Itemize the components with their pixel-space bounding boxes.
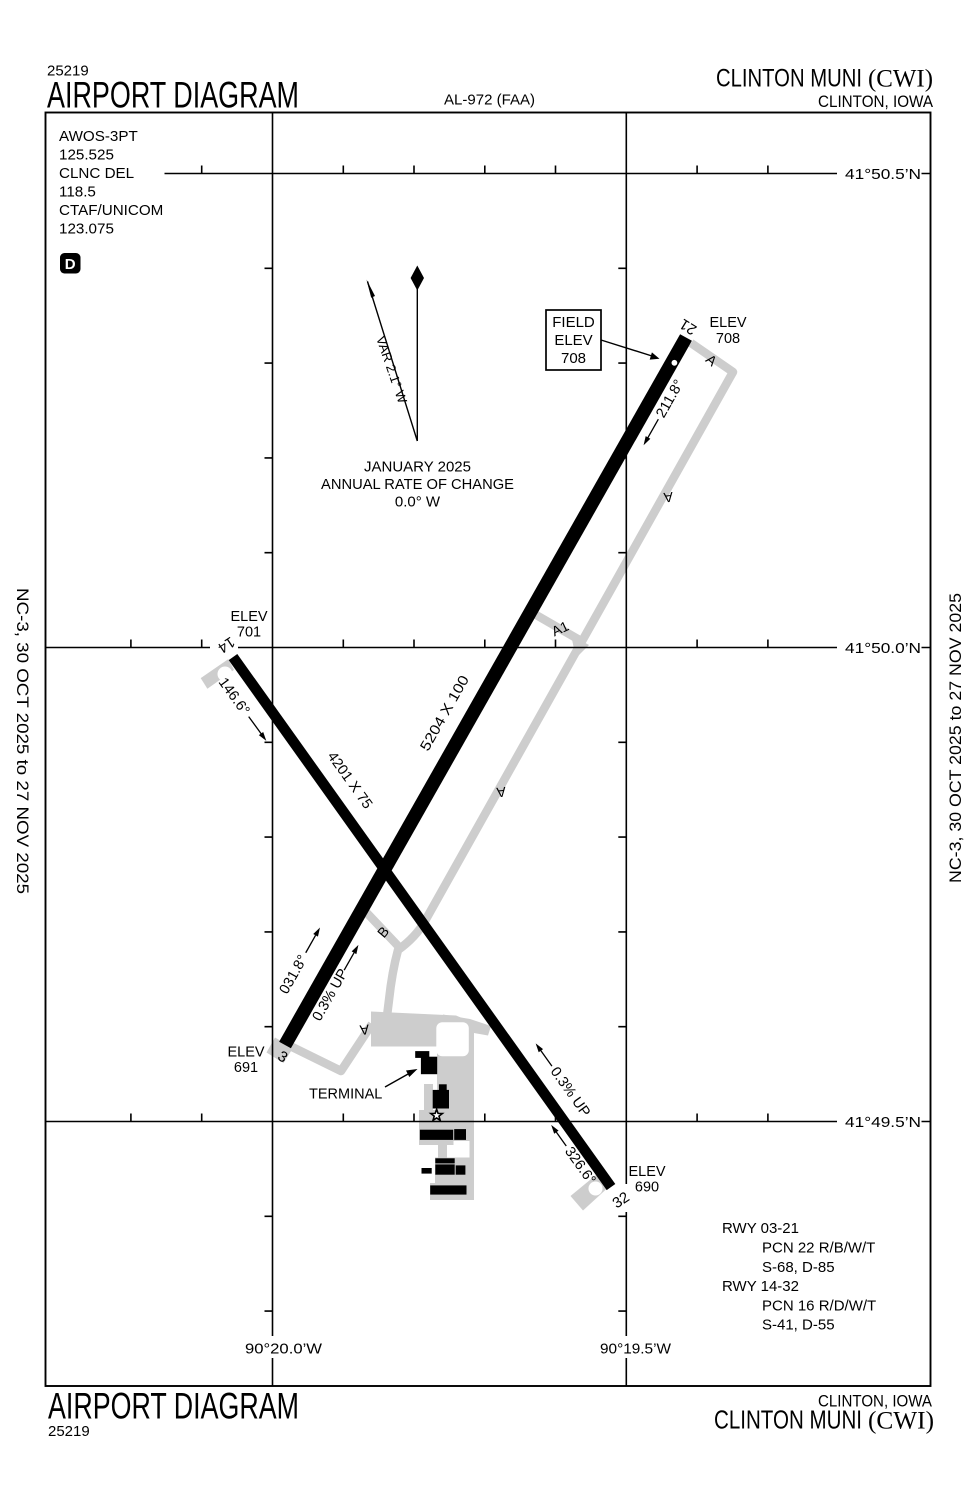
svg-text:FIELD: FIELD: [552, 314, 595, 331]
svg-text:JANUARY 2025: JANUARY 2025: [364, 459, 471, 476]
svg-text:690: 690: [635, 1180, 659, 1196]
svg-text:118.5: 118.5: [59, 184, 96, 201]
svg-text:ELEV: ELEV: [227, 1045, 264, 1061]
svg-text:PCN 22 R/B/W/T: PCN 22 R/B/W/T: [762, 1240, 875, 1257]
svg-text:RWY 14-32: RWY 14-32: [722, 1278, 799, 1295]
svg-text:NC-3, 30 OCT 2025 to 27 NOV: NC-3, 30 OCT 2025 to 27 NOV 2025: [13, 588, 31, 894]
svg-text:123.075: 123.075: [59, 221, 114, 238]
svg-text:ANNUAL RATE OF CHANGE: ANNUAL RATE OF CHANGE: [321, 476, 514, 493]
svg-text:AIRPORT DIAGRAM: AIRPORT DIAGRAM: [47, 75, 299, 116]
svg-text:CLINTON, IOWA: CLINTON, IOWA: [818, 93, 933, 111]
svg-text:41°50.5’N: 41°50.5’N: [845, 166, 921, 183]
svg-text:CLNC DEL: CLNC DEL: [59, 165, 134, 182]
svg-text:CTAF/UNICOM: CTAF/UNICOM: [59, 202, 163, 219]
svg-text:90°19.5’W: 90°19.5’W: [600, 1341, 672, 1358]
svg-text:PCN 16 R/D/W/T: PCN 16 R/D/W/T: [762, 1297, 876, 1314]
svg-text:701: 701: [237, 625, 261, 641]
svg-text:90°20.0’W: 90°20.0’W: [245, 1341, 323, 1358]
svg-text:708: 708: [716, 331, 740, 347]
svg-text:41°49.5’N: 41°49.5’N: [845, 1114, 921, 1131]
svg-text:(CWI): (CWI): [868, 66, 933, 93]
svg-text:AIRPORT DIAGRAM: AIRPORT DIAGRAM: [48, 1386, 299, 1427]
svg-text:708: 708: [561, 350, 586, 367]
svg-text:CLINTON MUNI: CLINTON MUNI: [716, 65, 862, 93]
svg-text:ELEV: ELEV: [554, 332, 592, 349]
svg-text:TERMINAL: TERMINAL: [309, 1087, 382, 1103]
svg-text:RWY 03-21: RWY 03-21: [722, 1220, 799, 1237]
svg-text:25219: 25219: [48, 1423, 90, 1440]
svg-text:CLINTON MUNI: CLINTON MUNI: [714, 1407, 862, 1435]
svg-text:NC-3, 30 OCT 2025 to 27 NOV: NC-3, 30 OCT 2025 to 27 NOV 2025: [947, 593, 965, 883]
svg-text:0.0° W: 0.0° W: [395, 494, 441, 511]
svg-text:AL-972 (FAA): AL-972 (FAA): [444, 92, 535, 109]
svg-text:D: D: [65, 256, 76, 273]
svg-text:ELEV: ELEV: [709, 315, 746, 331]
svg-text:691: 691: [234, 1060, 258, 1076]
svg-text:ELEV: ELEV: [628, 1164, 665, 1180]
svg-text:ELEV: ELEV: [230, 609, 267, 625]
svg-text:125.525: 125.525: [59, 147, 114, 164]
svg-text:S-68, D-85: S-68, D-85: [762, 1259, 835, 1276]
svg-text:41°50.0’N: 41°50.0’N: [845, 640, 921, 657]
svg-text:AWOS-3PT: AWOS-3PT: [59, 128, 138, 145]
svg-text:S-41, D-55: S-41, D-55: [762, 1317, 835, 1334]
svg-text:(CWI): (CWI): [868, 1406, 934, 1435]
